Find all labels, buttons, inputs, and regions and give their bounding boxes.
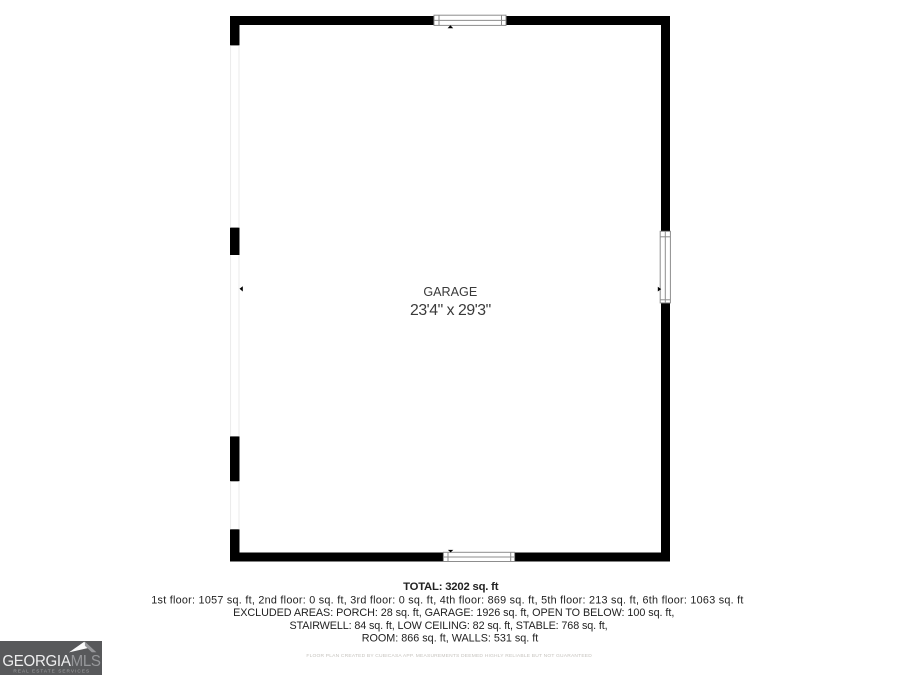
svg-text:FLOOR PLAN CREATED BY CUBICASA: FLOOR PLAN CREATED BY CUBICASA APP. MEAS… — [306, 653, 592, 659]
svg-text:TOTAL: 3202 sq. ft: TOTAL: 3202 sq. ft — [403, 581, 499, 593]
svg-text:23'4" x 29'3": 23'4" x 29'3" — [410, 302, 491, 319]
svg-text:ROOM: 866 sq. ft, WALLS: 531 s: ROOM: 866 sq. ft, WALLS: 531 sq. ft — [362, 632, 539, 644]
svg-text:STAIRWELL: 84 sq. ft, LOW CEIL: STAIRWELL: 84 sq. ft, LOW CEILING: 82 sq… — [289, 620, 607, 632]
svg-text:GARAGE: GARAGE — [423, 285, 477, 299]
svg-text:REAL ESTATE SERVICES: REAL ESTATE SERVICES — [13, 668, 90, 673]
svg-text:EXCLUDED AREAS: PORCH: 28 sq.: EXCLUDED AREAS: PORCH: 28 sq. ft, GARAGE… — [233, 607, 674, 619]
svg-text:1st floor: 1057 sq. ft, 2nd fl: 1st floor: 1057 sq. ft, 2nd floor: 0 sq.… — [151, 595, 743, 607]
